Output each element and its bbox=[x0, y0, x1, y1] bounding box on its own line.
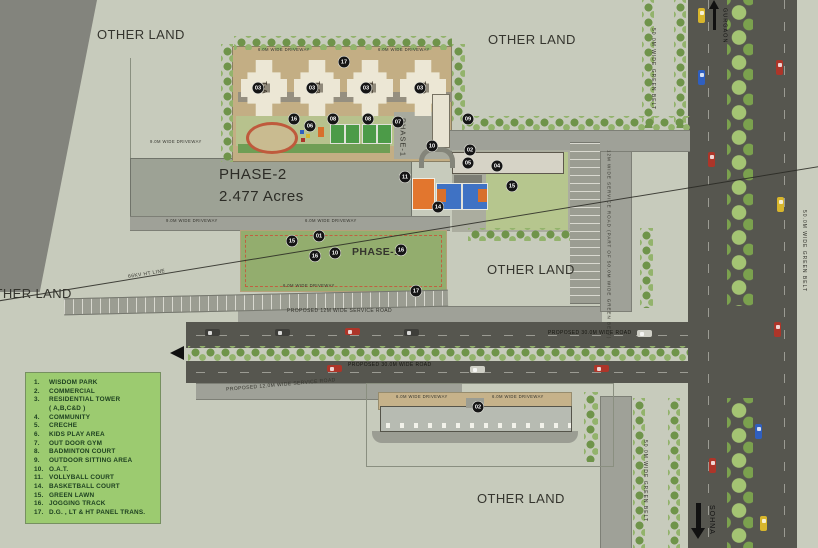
site-marker-06: 06 bbox=[305, 121, 316, 132]
legend-item-label: COMMERCIAL bbox=[49, 388, 95, 397]
phase2-title: PHASE-2 bbox=[219, 166, 304, 183]
basketball-court bbox=[436, 183, 488, 210]
lane-dashes-east-right bbox=[784, 0, 785, 548]
legend-item-number: 7. bbox=[34, 440, 49, 449]
green-belt-bottom: 50.0M WIDE GREEN BELT bbox=[642, 440, 647, 522]
road-30m-upper: PROPOSED 30.0M WIDE ROAD bbox=[548, 331, 632, 336]
car bbox=[345, 328, 360, 335]
legend-item-number: 17. bbox=[34, 509, 49, 518]
site-marker-08: 08 bbox=[328, 114, 339, 125]
legend-box: 1.WISDOM PARK2.COMMERCIAL3.RESIDENTIAL T… bbox=[25, 372, 161, 524]
other-land-left: OTHER LAND bbox=[0, 287, 72, 300]
legend-item-number: 1. bbox=[34, 379, 49, 388]
legend-item-number: 10. bbox=[34, 466, 49, 475]
car bbox=[776, 60, 783, 75]
driveway-lawn-top: 6.0M WIDE DRIVEWAY bbox=[305, 219, 357, 223]
site-marker-02: 02 bbox=[473, 402, 484, 413]
site-marker-01: 01 bbox=[314, 231, 325, 242]
car bbox=[698, 8, 705, 23]
driveway-lawn-bottom: 6.0M WIDE DRIVEWAY bbox=[283, 284, 335, 288]
car bbox=[470, 366, 485, 373]
site-marker-03: 03 bbox=[253, 83, 264, 94]
legend-item-number: 4. bbox=[34, 414, 49, 423]
phase1-lawn-block bbox=[240, 230, 447, 292]
phase2-west-boundary-line bbox=[130, 58, 131, 158]
south-arrow-head bbox=[691, 528, 705, 539]
legend-item: 6.KIDS PLAY AREA bbox=[34, 431, 154, 440]
legend-item-number: 16. bbox=[34, 500, 49, 509]
gate-building bbox=[432, 94, 450, 148]
legend-item: 14.BASKETBALL COURT bbox=[34, 483, 154, 492]
driveway-compound-1: 6.0M WIDE DRIVEWAY bbox=[258, 48, 310, 52]
car bbox=[698, 70, 705, 85]
legend-item-label: CRECHE bbox=[49, 422, 77, 431]
phase2-area: 2.477 Acres bbox=[219, 188, 304, 205]
legend-item-number: 2. bbox=[34, 388, 49, 397]
car bbox=[327, 365, 342, 372]
to-sohna: SOHNA bbox=[708, 505, 715, 535]
road-service-top: PROPOSED 12M WIDE SERVICE ROAD bbox=[287, 309, 392, 314]
site-marker-08: 08 bbox=[363, 114, 374, 125]
site-marker-03: 03 bbox=[361, 83, 372, 94]
green-belt-trees-top-right bbox=[674, 0, 686, 128]
green-belt-trees-bottom-right bbox=[668, 398, 680, 548]
badminton-court-2 bbox=[362, 124, 392, 144]
car bbox=[755, 424, 762, 439]
site-marker-16: 16 bbox=[310, 251, 321, 262]
site-plan: T-AT-BT-CT-D PHASE-2 2.477 Acres bbox=[0, 0, 818, 548]
kids-play-icon-2 bbox=[306, 134, 310, 138]
legend-item-label: D.G. , LT & HT PANEL TRANS. bbox=[49, 509, 145, 518]
to-gurgaon: GURGAON bbox=[721, 8, 727, 43]
phase1-lawn: PHASE-1 bbox=[352, 247, 400, 258]
volleyball-court bbox=[412, 178, 435, 210]
car bbox=[205, 329, 220, 336]
legend-item-label: VOLLYBALL COURT bbox=[49, 474, 114, 483]
legend-item-number bbox=[34, 405, 49, 414]
kids-play-icon-3 bbox=[301, 138, 305, 142]
legend-item-number: 11. bbox=[34, 474, 49, 483]
badminton-court-1 bbox=[330, 124, 360, 144]
car bbox=[708, 152, 715, 167]
legend-item-label: RESIDENTIAL TOWER bbox=[49, 396, 120, 405]
parking-lot-east bbox=[570, 142, 600, 304]
car bbox=[637, 330, 652, 337]
legend-item: 3.RESIDENTIAL TOWER bbox=[34, 396, 154, 405]
tower-T-A: T-A bbox=[241, 60, 287, 116]
driveway-compound-2: 6.0M WIDE DRIVEWAY bbox=[378, 48, 430, 52]
site-marker-09: 09 bbox=[463, 114, 474, 125]
otherland-tr-left-trees bbox=[452, 44, 465, 122]
south-arrow-shaft bbox=[696, 503, 701, 529]
site-marker-17: 17 bbox=[411, 286, 422, 297]
site-marker-16: 16 bbox=[289, 114, 300, 125]
legend-item: 2.COMMERCIAL bbox=[34, 388, 154, 397]
site-marker-04: 04 bbox=[492, 161, 503, 172]
east-road-median-trees-upper bbox=[727, 0, 753, 306]
internal-service-road-upper bbox=[600, 150, 632, 312]
basketball-key-right bbox=[478, 189, 487, 202]
car bbox=[777, 197, 784, 212]
other-land-mid-right: OTHER LAND bbox=[487, 263, 575, 276]
car bbox=[275, 329, 290, 336]
legend-item: 1.WISDOM PARK bbox=[34, 379, 154, 388]
kids-play-icon-1 bbox=[300, 130, 304, 134]
legend-item-number: 9. bbox=[34, 457, 49, 466]
site-marker-17: 17 bbox=[339, 57, 350, 68]
legend-item: 8.BADMINTON COURT bbox=[34, 448, 154, 457]
legend-items: 1.WISDOM PARK2.COMMERCIAL3.RESIDENTIAL T… bbox=[34, 379, 154, 518]
legend-item-number: 15. bbox=[34, 492, 49, 501]
otherland-tr-bottom-trees bbox=[462, 116, 690, 130]
green-belt-top: 50.0M WIDE GREEN BELT bbox=[650, 28, 655, 110]
driveway-phase2-bottom: 9.0M WIDE DRIVEWAY bbox=[166, 219, 218, 223]
car bbox=[760, 516, 767, 531]
other-land-top-right: OTHER LAND bbox=[488, 33, 576, 46]
car bbox=[774, 322, 781, 337]
road-30m-lower: PROPOSED 30.0M WIDE ROAD bbox=[348, 363, 432, 368]
legend-item: 11.VOLLYBALL COURT bbox=[34, 474, 154, 483]
legend-item: 9.OUTDOOR SITTING AREA bbox=[34, 457, 154, 466]
site-marker-14: 14 bbox=[433, 202, 444, 213]
outdoor-gym-pad bbox=[318, 127, 324, 137]
site-marker-10: 10 bbox=[330, 248, 341, 259]
site-marker-03: 03 bbox=[307, 83, 318, 94]
legend-item-label: JOGGING TRACK bbox=[49, 500, 106, 509]
car bbox=[404, 329, 419, 336]
legend-item: 17.D.G. , LT & HT PANEL TRANS. bbox=[34, 509, 154, 518]
phase2-plot: PHASE-2 2.477 Acres bbox=[130, 158, 412, 220]
legend-item-label: WISDOM PARK bbox=[49, 379, 98, 388]
commercial-east-trees bbox=[584, 392, 598, 462]
legend-item: 7.OUT DOOR GYM bbox=[34, 440, 154, 449]
legend-item-number: 8. bbox=[34, 448, 49, 457]
site-marker-11: 11 bbox=[400, 172, 411, 183]
legend-item-label: O.A.T. bbox=[49, 466, 68, 475]
road-west-arrow bbox=[170, 346, 184, 360]
legend-item: 16.JOGGING TRACK bbox=[34, 500, 154, 509]
compound-left-trees bbox=[221, 44, 233, 162]
site-marker-15: 15 bbox=[507, 181, 518, 192]
legend-item-number: 3. bbox=[34, 396, 49, 405]
oat-amphitheatre bbox=[419, 147, 455, 168]
legend-item: 15.GREEN LAWN bbox=[34, 492, 154, 501]
jogging-track-oval bbox=[246, 122, 298, 154]
legend-item-label: KIDS PLAY AREA bbox=[49, 431, 105, 440]
legend-item-number: 5. bbox=[34, 422, 49, 431]
site-marker-03: 03 bbox=[415, 83, 426, 94]
legend-item-label: OUT DOOR GYM bbox=[49, 440, 102, 449]
legend-item-number: 14. bbox=[34, 483, 49, 492]
driveway-commercial-2: 6.0M WIDE DRIVEWAY bbox=[492, 395, 544, 399]
other-land-top-left: OTHER LAND bbox=[97, 28, 185, 41]
site-marker-15: 15 bbox=[287, 236, 298, 247]
car bbox=[709, 458, 716, 473]
other-land-bottom: OTHER LAND bbox=[477, 492, 565, 505]
commercial-drive-loop bbox=[372, 431, 578, 443]
site-marker-02: 02 bbox=[465, 145, 476, 156]
basketball-key-left bbox=[437, 189, 446, 202]
legend-item: 5.CRECHE bbox=[34, 422, 154, 431]
green-belt-trees-mid bbox=[640, 228, 653, 308]
driveway-phase2-top: 9.0M WIDE DRIVEWAY bbox=[150, 140, 202, 144]
ht-line-label: 66KV HT LINE bbox=[128, 269, 166, 280]
legend-item: 4.COMMUNITY bbox=[34, 414, 154, 423]
legend-item-number: 6. bbox=[34, 431, 49, 440]
site-marker-05: 05 bbox=[463, 158, 474, 169]
north-arrow-head bbox=[709, 0, 719, 9]
site-marker-16: 16 bbox=[396, 245, 407, 256]
legend-item-label: COMMUNITY bbox=[49, 414, 90, 423]
legend-item: ( A,B,C&D ) bbox=[34, 405, 154, 414]
legend-item-label: ( A,B,C&D ) bbox=[49, 405, 85, 414]
legend-item-label: OUTDOOR SITTING AREA bbox=[49, 457, 132, 466]
green-belt-right: 50.0M WIDE GREEN BELT bbox=[801, 210, 806, 292]
car bbox=[594, 365, 609, 372]
legend-item: 10.O.A.T. bbox=[34, 466, 154, 475]
road-vertical-service: 12M WIDE SERVICE ROAD (PART OF 50.0M WID… bbox=[606, 150, 611, 339]
left-boundary-wedge bbox=[0, 0, 97, 292]
legend-item-label: GREEN LAWN bbox=[49, 492, 94, 501]
north-arrow-shaft bbox=[713, 8, 716, 30]
driveway-commercial-1: 6.0M WIDE DRIVEWAY bbox=[396, 395, 448, 399]
site-marker-07: 07 bbox=[393, 117, 404, 128]
legend-item-label: BASKETBALL COURT bbox=[49, 483, 120, 492]
site-marker-10: 10 bbox=[427, 141, 438, 152]
otherland-mid-top-trees bbox=[468, 228, 572, 241]
legend-item-label: BADMINTON COURT bbox=[49, 448, 115, 457]
east-road-median-trees-lower bbox=[727, 398, 753, 548]
